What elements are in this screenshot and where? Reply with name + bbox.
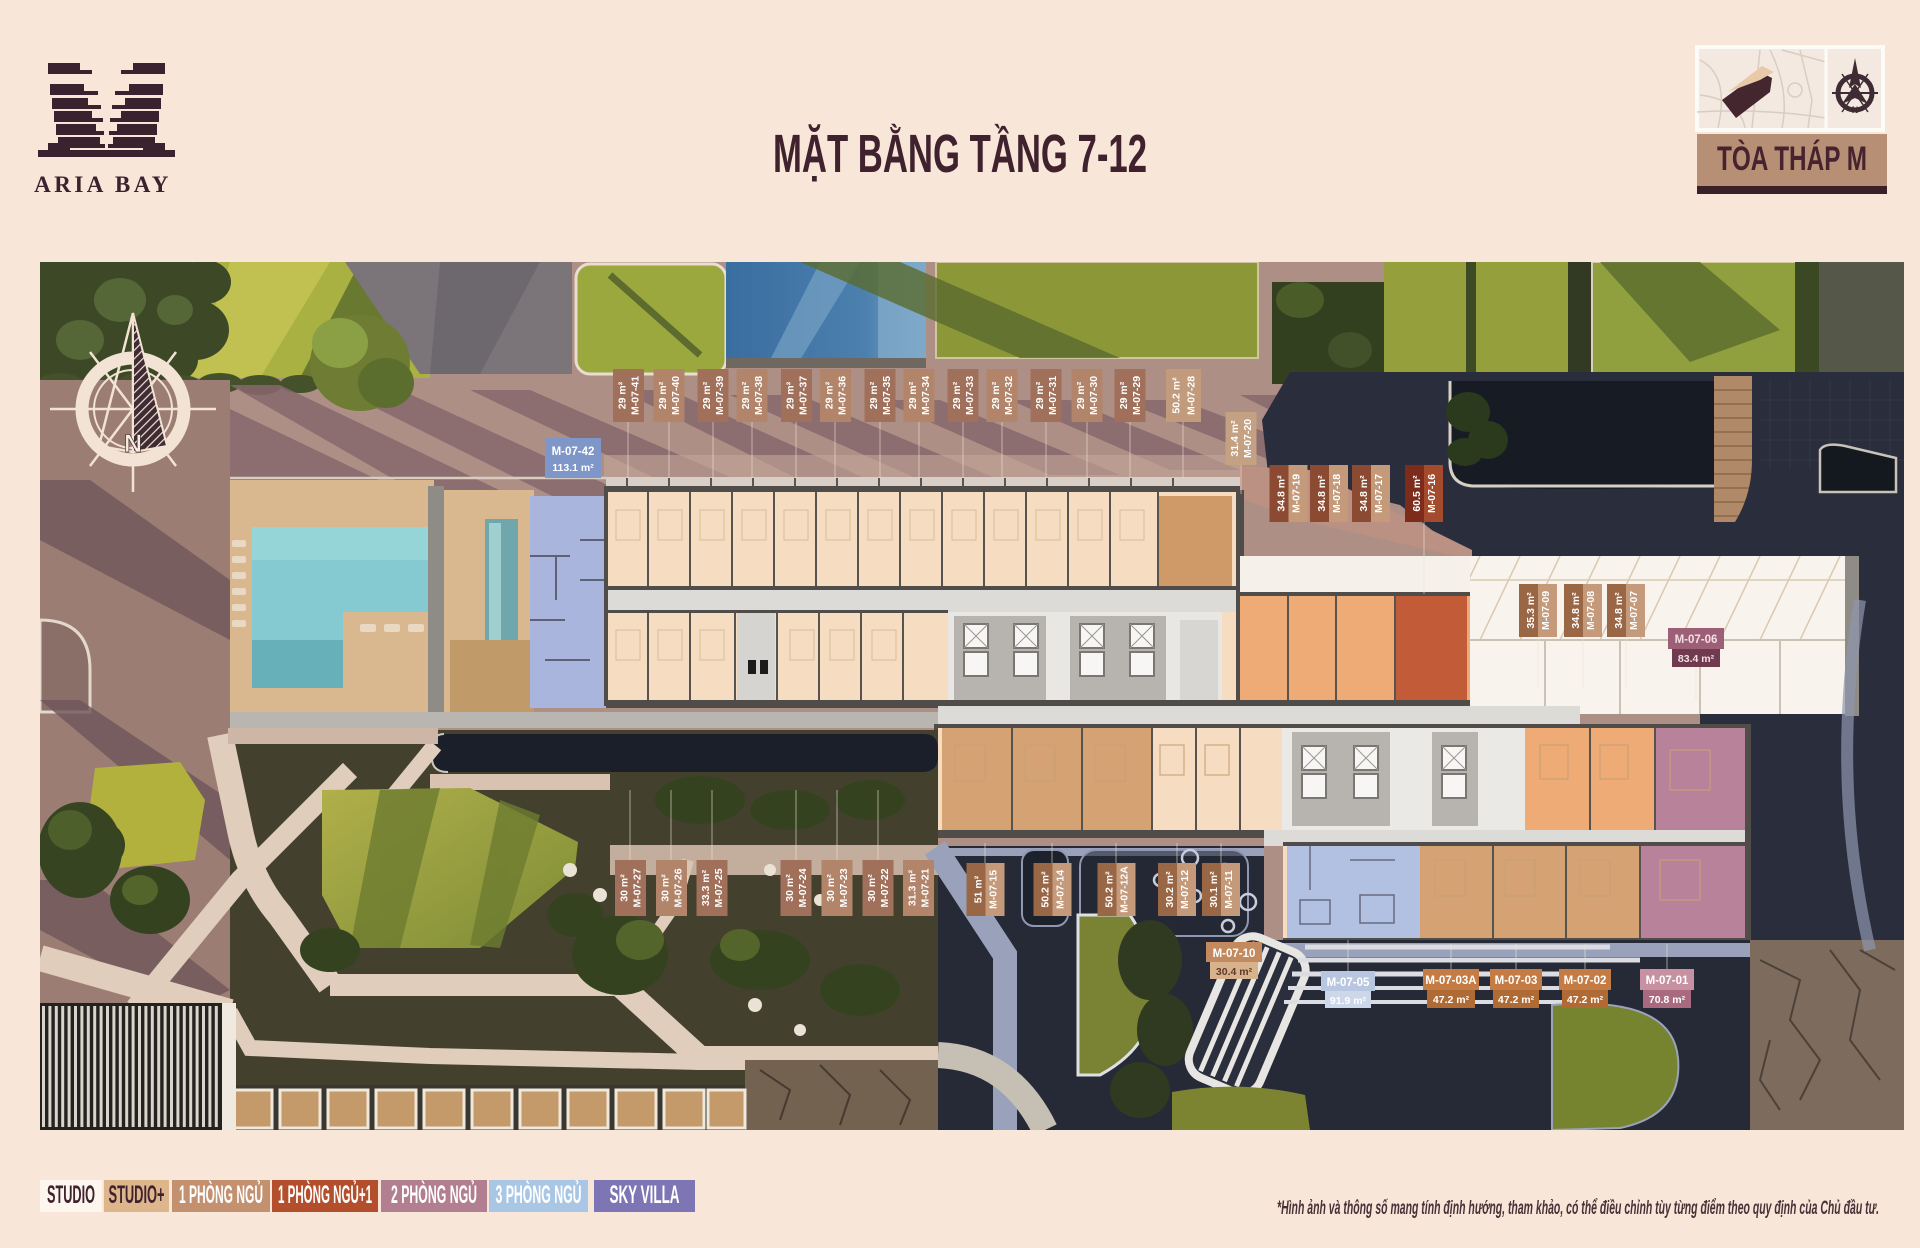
svg-text:29 m²: 29 m² <box>785 381 797 409</box>
svg-text:M-07-22: M-07-22 <box>879 868 891 907</box>
svg-text:M-07-12: M-07-12 <box>1179 870 1191 909</box>
svg-text:29 m²: 29 m² <box>907 381 919 409</box>
svg-text:29 m²: 29 m² <box>1118 381 1130 409</box>
svg-text:M-07-07: M-07-07 <box>1628 591 1640 630</box>
svg-text:M-07-15: M-07-15 <box>988 870 1000 909</box>
svg-text:*Hình ảnh và thông số mang tín: *Hình ảnh và thông số mang tính định hướ… <box>1277 1197 1879 1219</box>
svg-text:M-07-09: M-07-09 <box>1540 591 1552 630</box>
svg-text:SKY VILLA: SKY VILLA <box>610 1181 680 1209</box>
svg-text:29 m²: 29 m² <box>1075 381 1087 409</box>
svg-text:M-07-37: M-07-37 <box>798 376 810 415</box>
svg-text:29 m²: 29 m² <box>990 381 1002 409</box>
svg-text:N: N <box>1852 105 1859 115</box>
svg-text:2 PHÒNG NGỦ: 2 PHÒNG NGỦ <box>391 1179 477 1209</box>
svg-text:50.2 m²: 50.2 m² <box>1040 871 1052 908</box>
svg-text:M-07-03: M-07-03 <box>1495 975 1538 987</box>
svg-text:30 m²: 30 m² <box>866 874 878 902</box>
svg-text:47.2 m²: 47.2 m² <box>1567 994 1604 1006</box>
svg-text:113.1 m²: 113.1 m² <box>552 462 594 474</box>
svg-text:M-07-40: M-07-40 <box>670 376 682 415</box>
svg-text:51 m²: 51 m² <box>973 875 985 903</box>
svg-text:83.4 m²: 83.4 m² <box>1678 653 1715 665</box>
svg-text:M-07-08: M-07-08 <box>1585 591 1597 630</box>
svg-text:M-07-26: M-07-26 <box>673 868 685 907</box>
svg-text:M-07-19: M-07-19 <box>1291 474 1303 513</box>
svg-text:TÒA THÁP M: TÒA THÁP M <box>1717 140 1867 178</box>
svg-text:34.8 m²: 34.8 m² <box>1316 475 1328 512</box>
svg-text:29 m²: 29 m² <box>868 381 880 409</box>
svg-text:M-07-32: M-07-32 <box>1003 376 1015 415</box>
svg-text:M-07-29: M-07-29 <box>1131 376 1143 415</box>
svg-text:31.4 m²: 31.4 m² <box>1229 420 1241 457</box>
svg-text:M-07-33: M-07-33 <box>964 376 976 415</box>
svg-text:33.3 m²: 33.3 m² <box>700 869 712 906</box>
svg-text:STUDIO+: STUDIO+ <box>109 1181 165 1209</box>
svg-text:29 m²: 29 m² <box>824 381 836 409</box>
svg-text:M-07-06: M-07-06 <box>1675 634 1718 646</box>
svg-text:70.8 m²: 70.8 m² <box>1649 994 1686 1006</box>
svg-text:60.5 m²: 60.5 m² <box>1411 475 1423 512</box>
svg-text:29 m²: 29 m² <box>617 381 629 409</box>
svg-text:30 m²: 30 m² <box>619 874 631 902</box>
svg-text:34.8 m²: 34.8 m² <box>1276 475 1288 512</box>
svg-text:M-07-12A: M-07-12A <box>1119 866 1131 913</box>
svg-text:50.2 m²: 50.2 m² <box>1104 871 1116 908</box>
svg-text:3 PHÒNG NGỦ: 3 PHÒNG NGỦ <box>496 1179 582 1209</box>
svg-text:M-07-20: M-07-20 <box>1242 419 1254 458</box>
svg-text:M-07-28: M-07-28 <box>1186 376 1198 415</box>
svg-text:1 PHÒNG NGỦ: 1 PHÒNG NGỦ <box>179 1179 263 1209</box>
svg-text:30 m²: 30 m² <box>660 874 672 902</box>
svg-text:30.4 m²: 30.4 m² <box>1216 966 1253 978</box>
svg-text:M-07-39: M-07-39 <box>714 376 726 415</box>
svg-text:M-07-18: M-07-18 <box>1331 474 1343 513</box>
svg-text:M-07-25: M-07-25 <box>713 868 725 907</box>
svg-text:MẶT BẰNG TẦNG 7-12: MẶT BẰNG TẦNG 7-12 <box>773 124 1147 184</box>
svg-text:M-07-10: M-07-10 <box>1213 948 1256 960</box>
svg-text:M-07-11: M-07-11 <box>1223 870 1235 909</box>
svg-text:29 m²: 29 m² <box>657 381 669 409</box>
svg-text:M-07-14: M-07-14 <box>1055 870 1067 909</box>
svg-text:29 m²: 29 m² <box>951 381 963 409</box>
svg-text:M-07-38: M-07-38 <box>753 376 765 415</box>
svg-text:1 PHÒNG NGỦ+1: 1 PHÒNG NGỦ+1 <box>278 1179 372 1209</box>
svg-text:STUDIO: STUDIO <box>47 1181 95 1209</box>
svg-text:ARIA BAY: ARIA BAY <box>34 172 172 197</box>
svg-text:29 m²: 29 m² <box>1034 381 1046 409</box>
svg-text:M-07-31: M-07-31 <box>1047 376 1059 415</box>
svg-text:M-07-17: M-07-17 <box>1373 474 1385 513</box>
svg-text:M-07-16: M-07-16 <box>1426 474 1438 513</box>
svg-text:47.2 m²: 47.2 m² <box>1433 994 1470 1006</box>
svg-text:31.3 m²: 31.3 m² <box>907 869 919 906</box>
svg-text:M-07-30: M-07-30 <box>1088 376 1100 415</box>
svg-text:50.2 m²: 50.2 m² <box>1171 377 1183 414</box>
svg-text:M-07-41: M-07-41 <box>630 376 642 415</box>
svg-text:47.2 m²: 47.2 m² <box>1498 994 1535 1006</box>
svg-text:M-07-24: M-07-24 <box>797 868 809 907</box>
svg-text:M-07-01: M-07-01 <box>1646 975 1689 987</box>
svg-text:30.1 m²: 30.1 m² <box>1208 871 1220 908</box>
svg-text:35.3 m²: 35.3 m² <box>1525 592 1537 629</box>
svg-text:M-07-23: M-07-23 <box>838 868 850 907</box>
svg-text:34.8 m²: 34.8 m² <box>1570 592 1582 629</box>
svg-text:M-07-35: M-07-35 <box>881 376 893 415</box>
svg-text:M-07-34: M-07-34 <box>920 376 932 415</box>
svg-text:91.9 m²: 91.9 m² <box>1330 995 1367 1007</box>
svg-text:M-07-42: M-07-42 <box>552 446 595 458</box>
svg-text:29 m²: 29 m² <box>701 381 713 409</box>
svg-text:30 m²: 30 m² <box>825 874 837 902</box>
svg-text:34.8 m²: 34.8 m² <box>1358 475 1370 512</box>
svg-text:M-07-27: M-07-27 <box>632 868 644 907</box>
svg-text:M-07-03A: M-07-03A <box>1425 975 1476 987</box>
svg-text:30 m²: 30 m² <box>784 874 796 902</box>
svg-text:N: N <box>124 430 142 458</box>
svg-text:M-07-21: M-07-21 <box>920 868 932 907</box>
svg-text:M-07-02: M-07-02 <box>1564 975 1607 987</box>
svg-text:M-07-36: M-07-36 <box>837 376 849 415</box>
svg-text:29 m²: 29 m² <box>740 381 752 409</box>
svg-text:34.8 m²: 34.8 m² <box>1613 592 1625 629</box>
svg-text:M-07-05: M-07-05 <box>1327 977 1370 989</box>
svg-text:30.2 m²: 30.2 m² <box>1164 871 1176 908</box>
